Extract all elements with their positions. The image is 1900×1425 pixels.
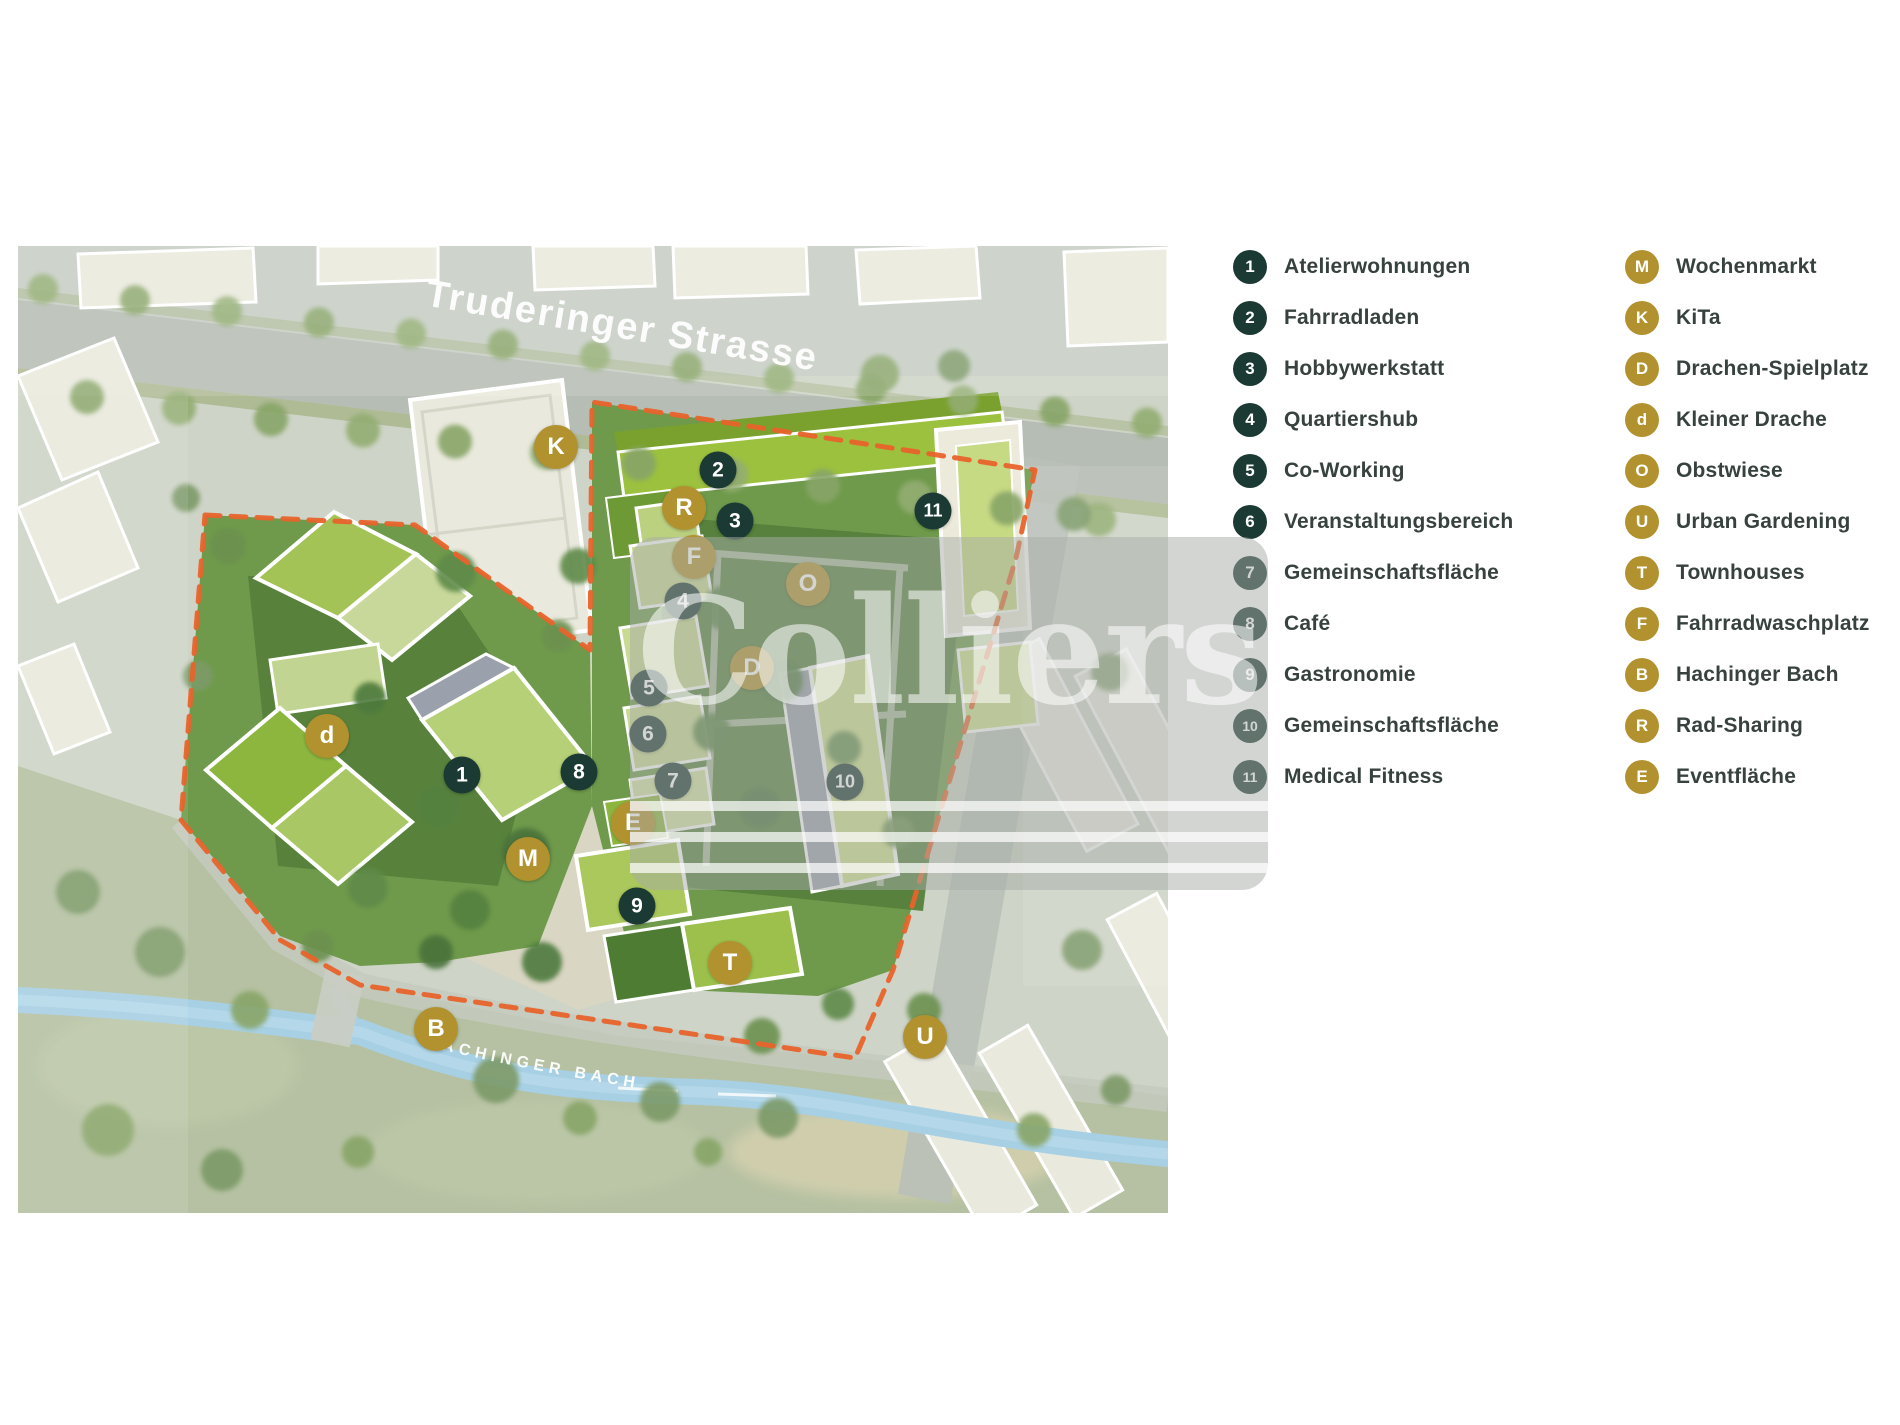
legend-item-d: dKleiner Drache	[1625, 403, 1870, 437]
tree	[822, 988, 854, 1020]
legend-label: Gemeinschaftsfläche	[1284, 714, 1499, 738]
legend-label: Fahrradladen	[1284, 306, 1419, 330]
tree	[346, 413, 380, 447]
tree	[563, 1101, 597, 1135]
legend-key-6: 6	[1233, 505, 1267, 539]
tree	[806, 469, 840, 503]
legend-label: Drachen-Spielplatz	[1676, 357, 1869, 381]
site-plan-artwork: Truderinger Strasse HACHINGER BACH	[18, 246, 1168, 1213]
legend-label: Co-Working	[1284, 459, 1405, 483]
legend-item-M: MWochenmarkt	[1625, 250, 1870, 284]
tree	[348, 868, 388, 908]
legend-item-10: 10Gemeinschaftsfläche	[1233, 709, 1513, 743]
tree	[714, 458, 748, 492]
legend-key-O: O	[1625, 454, 1659, 488]
legend-item-R: RRad-Sharing	[1625, 709, 1870, 743]
legend-item-D: DDrachen-Spielplatz	[1625, 352, 1870, 386]
tree	[201, 1149, 243, 1191]
tree	[757, 657, 803, 703]
legend-item-6: 6Veranstaltungsbereich	[1233, 505, 1513, 539]
legend-label: Eventfläche	[1676, 765, 1796, 789]
legend-label: Kleiner Drache	[1676, 408, 1827, 432]
tree	[907, 993, 941, 1027]
legend-item-2: 2Fahrradladen	[1233, 301, 1513, 335]
site-plan-map: Truderinger Strasse HACHINGER BACH	[18, 246, 1168, 1213]
legend-label: Townhouses	[1676, 561, 1805, 585]
tree	[693, 713, 731, 751]
legend-item-K: KKiTa	[1625, 301, 1870, 335]
legend-key-d: d	[1625, 403, 1659, 437]
legend-item-7: 7Gemeinschaftsfläche	[1233, 556, 1513, 590]
tree	[1040, 396, 1070, 426]
legend-key-7: 7	[1233, 556, 1267, 590]
tree	[640, 1082, 680, 1122]
legend-label: Café	[1284, 612, 1330, 636]
tree	[1132, 408, 1162, 438]
legend-label: Medical Fitness	[1284, 765, 1443, 789]
tree	[827, 731, 861, 765]
legend-key-B: B	[1625, 658, 1659, 692]
tree	[450, 890, 490, 930]
legend-key-D: D	[1625, 352, 1659, 386]
legend-label: Obstwiese	[1676, 459, 1783, 483]
legend-label: Wochenmarkt	[1676, 255, 1817, 279]
tree	[254, 402, 288, 436]
legend-column-1: 1Atelierwohnungen2Fahrradladen3Hobbywerk…	[1233, 250, 1513, 811]
legend-key-T: T	[1625, 556, 1659, 590]
legend-item-1: 1Atelierwohnungen	[1233, 250, 1513, 284]
tree	[694, 1138, 722, 1166]
legend-item-T: TTownhouses	[1625, 556, 1870, 590]
tree	[702, 586, 746, 630]
tree	[882, 816, 914, 848]
legend-label: Quartiershub	[1284, 408, 1418, 432]
tree	[354, 682, 386, 714]
tree	[898, 480, 932, 514]
legend-item-8: 8Café	[1233, 607, 1513, 641]
tree	[744, 1018, 780, 1054]
legend-label: Hobbywerkstatt	[1284, 357, 1444, 381]
tree	[342, 1136, 374, 1168]
legend-key-10: 10	[1233, 709, 1267, 743]
tree	[758, 1098, 798, 1138]
legend-label: Atelierwohnungen	[1284, 255, 1470, 279]
tree	[1017, 1113, 1051, 1147]
legend-key-9: 9	[1233, 658, 1267, 692]
legend-item-4: 4Quartiershub	[1233, 403, 1513, 437]
legend-key-M: M	[1625, 250, 1659, 284]
legend-item-F: FFahrradwaschplatz	[1625, 607, 1870, 641]
tree	[522, 942, 562, 982]
legend-key-K: K	[1625, 301, 1659, 335]
legend-label: Rad-Sharing	[1676, 714, 1803, 738]
tree	[436, 552, 476, 592]
tree	[1101, 1075, 1131, 1105]
site-plan-page: Truderinger Strasse HACHINGER BACH K2R3F…	[0, 0, 1900, 1425]
tree	[210, 528, 246, 564]
legend-column-2: MWochenmarktKKiTaDDrachen-SpielplatzdKle…	[1625, 250, 1870, 811]
legend-key-4: 4	[1233, 403, 1267, 437]
legend-item-3: 3Hobbywerkstatt	[1233, 352, 1513, 386]
legend-label: KiTa	[1676, 306, 1721, 330]
legend-item-U: UUrban Gardening	[1625, 505, 1870, 539]
legend-key-8: 8	[1233, 607, 1267, 641]
legend-item-E: EEventfläche	[1625, 760, 1870, 794]
tree	[438, 425, 472, 459]
legend-label: Fahrradwaschplatz	[1676, 612, 1870, 636]
legend-key-5: 5	[1233, 454, 1267, 488]
tree	[231, 991, 269, 1029]
legend-item-11: 11Medical Fitness	[1233, 760, 1513, 794]
tree	[990, 491, 1024, 525]
tree	[502, 828, 550, 876]
tree	[739, 787, 781, 829]
legend-label: Veranstaltungsbereich	[1284, 510, 1513, 534]
legend-key-11: 11	[1233, 760, 1267, 794]
legend-label: Gemeinschaftsfläche	[1284, 561, 1499, 585]
legend-key-U: U	[1625, 505, 1659, 539]
legend-item-B: BHachinger Bach	[1625, 658, 1870, 692]
legend-key-1: 1	[1233, 250, 1267, 284]
tree	[419, 935, 453, 969]
legend-label: Hachinger Bach	[1676, 663, 1839, 687]
legend-key-F: F	[1625, 607, 1659, 641]
legend-key-E: E	[1625, 760, 1659, 794]
tree	[530, 436, 564, 470]
legend-item-9: 9Gastronomie	[1233, 658, 1513, 692]
legend-item-O: OObstwiese	[1625, 454, 1870, 488]
legend-key-R: R	[1625, 709, 1659, 743]
tree	[416, 784, 460, 828]
legend-label: Urban Gardening	[1676, 510, 1851, 534]
legend-key-2: 2	[1233, 301, 1267, 335]
legend-key-3: 3	[1233, 352, 1267, 386]
legend-item-5: 5Co-Working	[1233, 454, 1513, 488]
tree	[622, 447, 656, 481]
legend-label: Gastronomie	[1284, 663, 1416, 687]
